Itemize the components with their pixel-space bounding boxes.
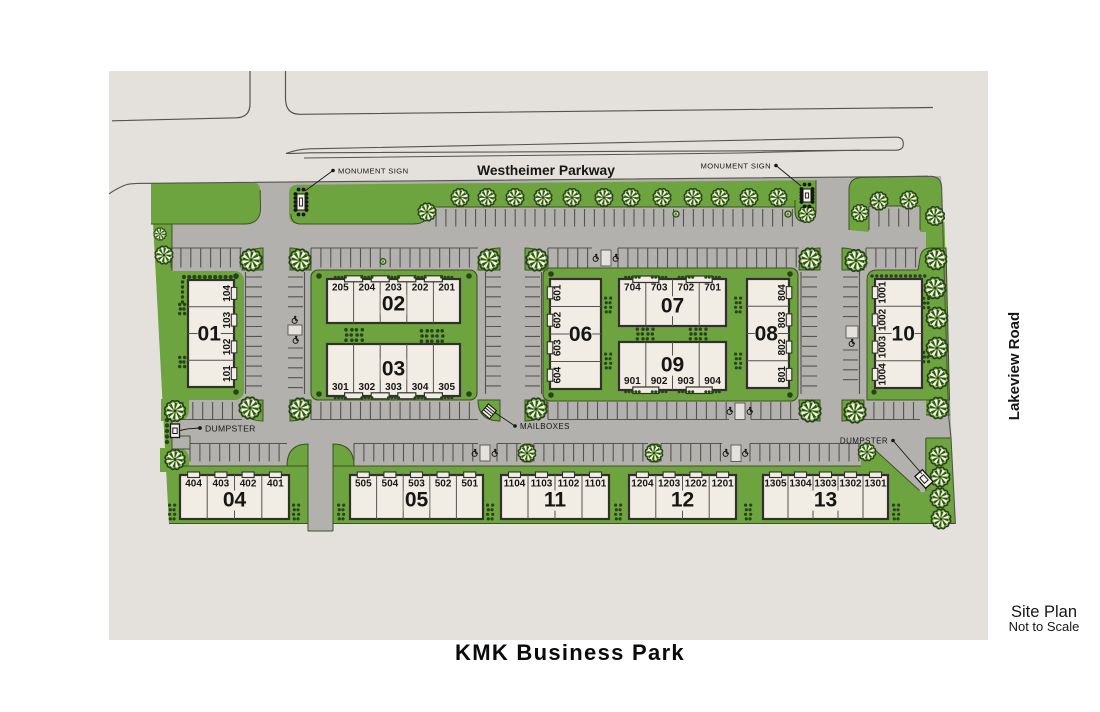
svg-text:11: 11: [544, 489, 567, 512]
svg-text:202: 202: [412, 283, 429, 294]
svg-text:10: 10: [892, 323, 915, 346]
svg-text:304: 304: [412, 382, 429, 393]
svg-text:MAILBOXES: MAILBOXES: [520, 422, 570, 431]
svg-text:604: 604: [553, 366, 564, 383]
svg-text:07: 07: [661, 294, 684, 317]
svg-text:13: 13: [814, 489, 837, 512]
svg-text:Not to Scale: Not to Scale: [1009, 619, 1080, 634]
svg-text:1204: 1204: [631, 479, 654, 490]
svg-text:1101: 1101: [585, 479, 607, 490]
svg-text:104: 104: [222, 285, 233, 302]
svg-text:603: 603: [553, 339, 564, 356]
svg-text:302: 302: [359, 382, 376, 393]
svg-text:801: 801: [777, 366, 788, 383]
svg-text:205: 205: [332, 283, 349, 294]
svg-text:702: 702: [678, 283, 695, 294]
svg-text:02: 02: [382, 293, 405, 316]
svg-text:802: 802: [777, 338, 788, 355]
svg-text:303: 303: [385, 382, 402, 393]
svg-text:602: 602: [553, 311, 564, 328]
svg-text:501: 501: [461, 479, 478, 490]
svg-text:DUMPSTER: DUMPSTER: [840, 437, 888, 446]
svg-text:MONUMENT SIGN: MONUMENT SIGN: [701, 162, 771, 171]
svg-text:505: 505: [355, 479, 372, 490]
svg-text:704: 704: [624, 283, 641, 294]
svg-text:Westheimer Parkway: Westheimer Parkway: [477, 163, 615, 178]
svg-text:Lakeview Road: Lakeview Road: [1006, 312, 1023, 420]
svg-text:301: 301: [332, 382, 349, 393]
svg-text:1001: 1001: [878, 281, 889, 304]
svg-text:902: 902: [651, 376, 668, 387]
svg-text:1002: 1002: [878, 308, 889, 331]
svg-text:DUMPSTER: DUMPSTER: [205, 424, 256, 434]
svg-text:MONUMENT SIGN: MONUMENT SIGN: [338, 167, 408, 176]
svg-text:1302: 1302: [839, 479, 862, 490]
svg-text:01: 01: [198, 323, 222, 346]
svg-text:404: 404: [185, 479, 202, 490]
svg-text:1301: 1301: [864, 479, 887, 490]
svg-text:504: 504: [382, 479, 399, 490]
svg-text:06: 06: [569, 323, 592, 346]
svg-text:701: 701: [704, 283, 721, 294]
svg-text:601: 601: [553, 284, 564, 301]
svg-text:904: 904: [704, 376, 721, 387]
svg-text:401: 401: [267, 479, 284, 490]
svg-text:102: 102: [222, 338, 233, 355]
svg-text:1201: 1201: [711, 479, 734, 490]
svg-text:903: 903: [678, 376, 695, 387]
svg-text:04: 04: [223, 489, 247, 512]
svg-text:KMK Business Park: KMK Business Park: [455, 640, 685, 665]
svg-text:502: 502: [435, 479, 452, 490]
svg-text:201: 201: [438, 283, 455, 294]
svg-text:03: 03: [382, 357, 405, 380]
svg-text:703: 703: [651, 283, 668, 294]
svg-text:1003: 1003: [878, 336, 889, 359]
svg-text:101: 101: [222, 365, 233, 382]
svg-text:1004: 1004: [878, 363, 889, 386]
svg-text:204: 204: [359, 283, 376, 294]
svg-text:12: 12: [671, 489, 694, 512]
svg-text:305: 305: [438, 382, 455, 393]
svg-text:1305: 1305: [764, 479, 787, 490]
svg-text:1304: 1304: [789, 479, 812, 490]
svg-text:05: 05: [405, 489, 429, 512]
svg-text:803: 803: [777, 311, 788, 328]
svg-text:103: 103: [222, 311, 233, 328]
svg-text:901: 901: [624, 376, 641, 387]
svg-text:1104: 1104: [504, 479, 526, 490]
svg-text:804: 804: [777, 284, 788, 301]
svg-text:08: 08: [755, 323, 779, 346]
svg-text:09: 09: [661, 354, 684, 377]
